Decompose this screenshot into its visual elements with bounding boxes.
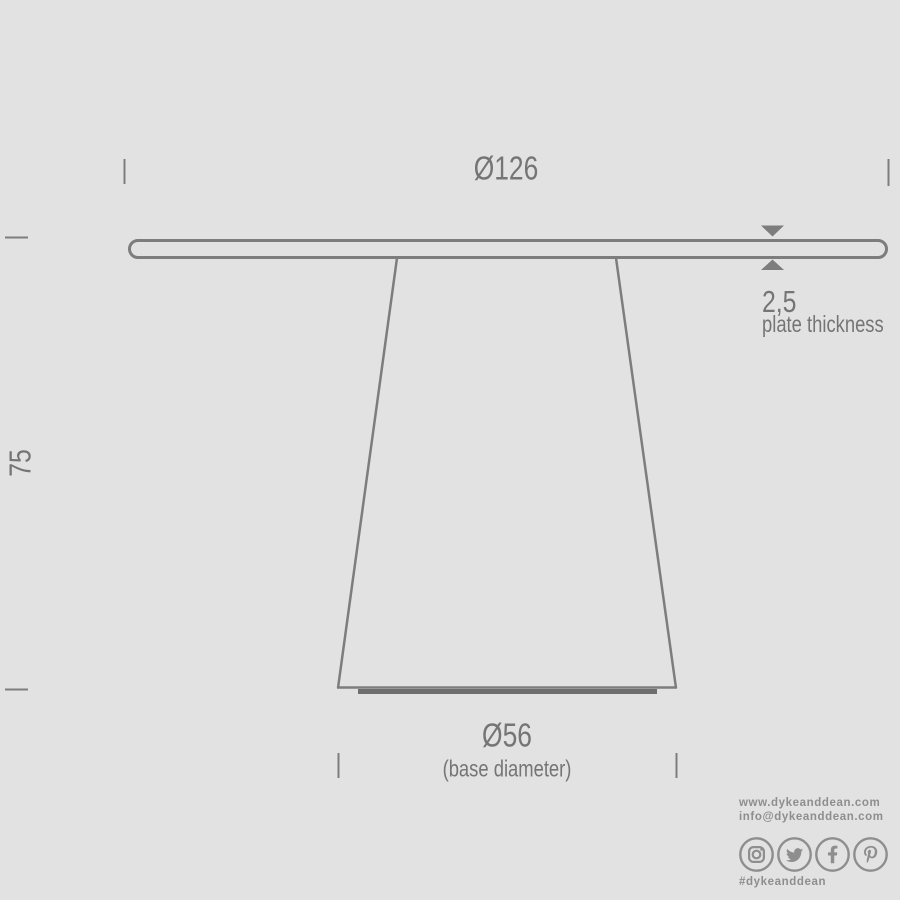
- plate-thickness-arrow-up: [761, 260, 784, 271]
- branding-footer: www.dykeanddean.com info@dykeanddean.com: [739, 796, 899, 888]
- website-text: www.dykeanddean.com: [739, 796, 899, 810]
- height-label: 75: [5, 449, 36, 477]
- email-text: info@dykeanddean.com: [739, 810, 899, 824]
- top-diameter-value: Ø126: [474, 152, 539, 185]
- table-top-profile: [130, 241, 887, 258]
- base-diameter-caption-label: (base diameter): [426, 758, 587, 781]
- plate-thickness-arrow-down: [761, 226, 784, 237]
- facebook-icon: [814, 836, 851, 873]
- plate-thickness-caption-label: plate thickness: [762, 313, 900, 336]
- hashtag-text: #dykeanddean: [739, 876, 899, 888]
- twitter-icon: [776, 836, 813, 873]
- base-diameter-caption: (base diameter): [443, 758, 572, 781]
- top-diameter-label: Ø126: [466, 152, 547, 185]
- pinterest-icon: [852, 836, 889, 873]
- pedestal-right-edge: [616, 258, 676, 688]
- base-diameter-label: Ø56: [476, 719, 538, 752]
- pedestal-left-edge: [338, 258, 397, 688]
- plate-thickness-caption: plate thickness: [762, 313, 884, 336]
- dimension-drawing-canvas: Ø126 75 2,5 plate thickness Ø56 (base di…: [0, 0, 900, 900]
- height-value: 75: [3, 449, 38, 477]
- base-diameter-value: Ø56: [482, 719, 532, 752]
- social-icons-row: [738, 836, 899, 873]
- instagram-icon: [738, 836, 775, 873]
